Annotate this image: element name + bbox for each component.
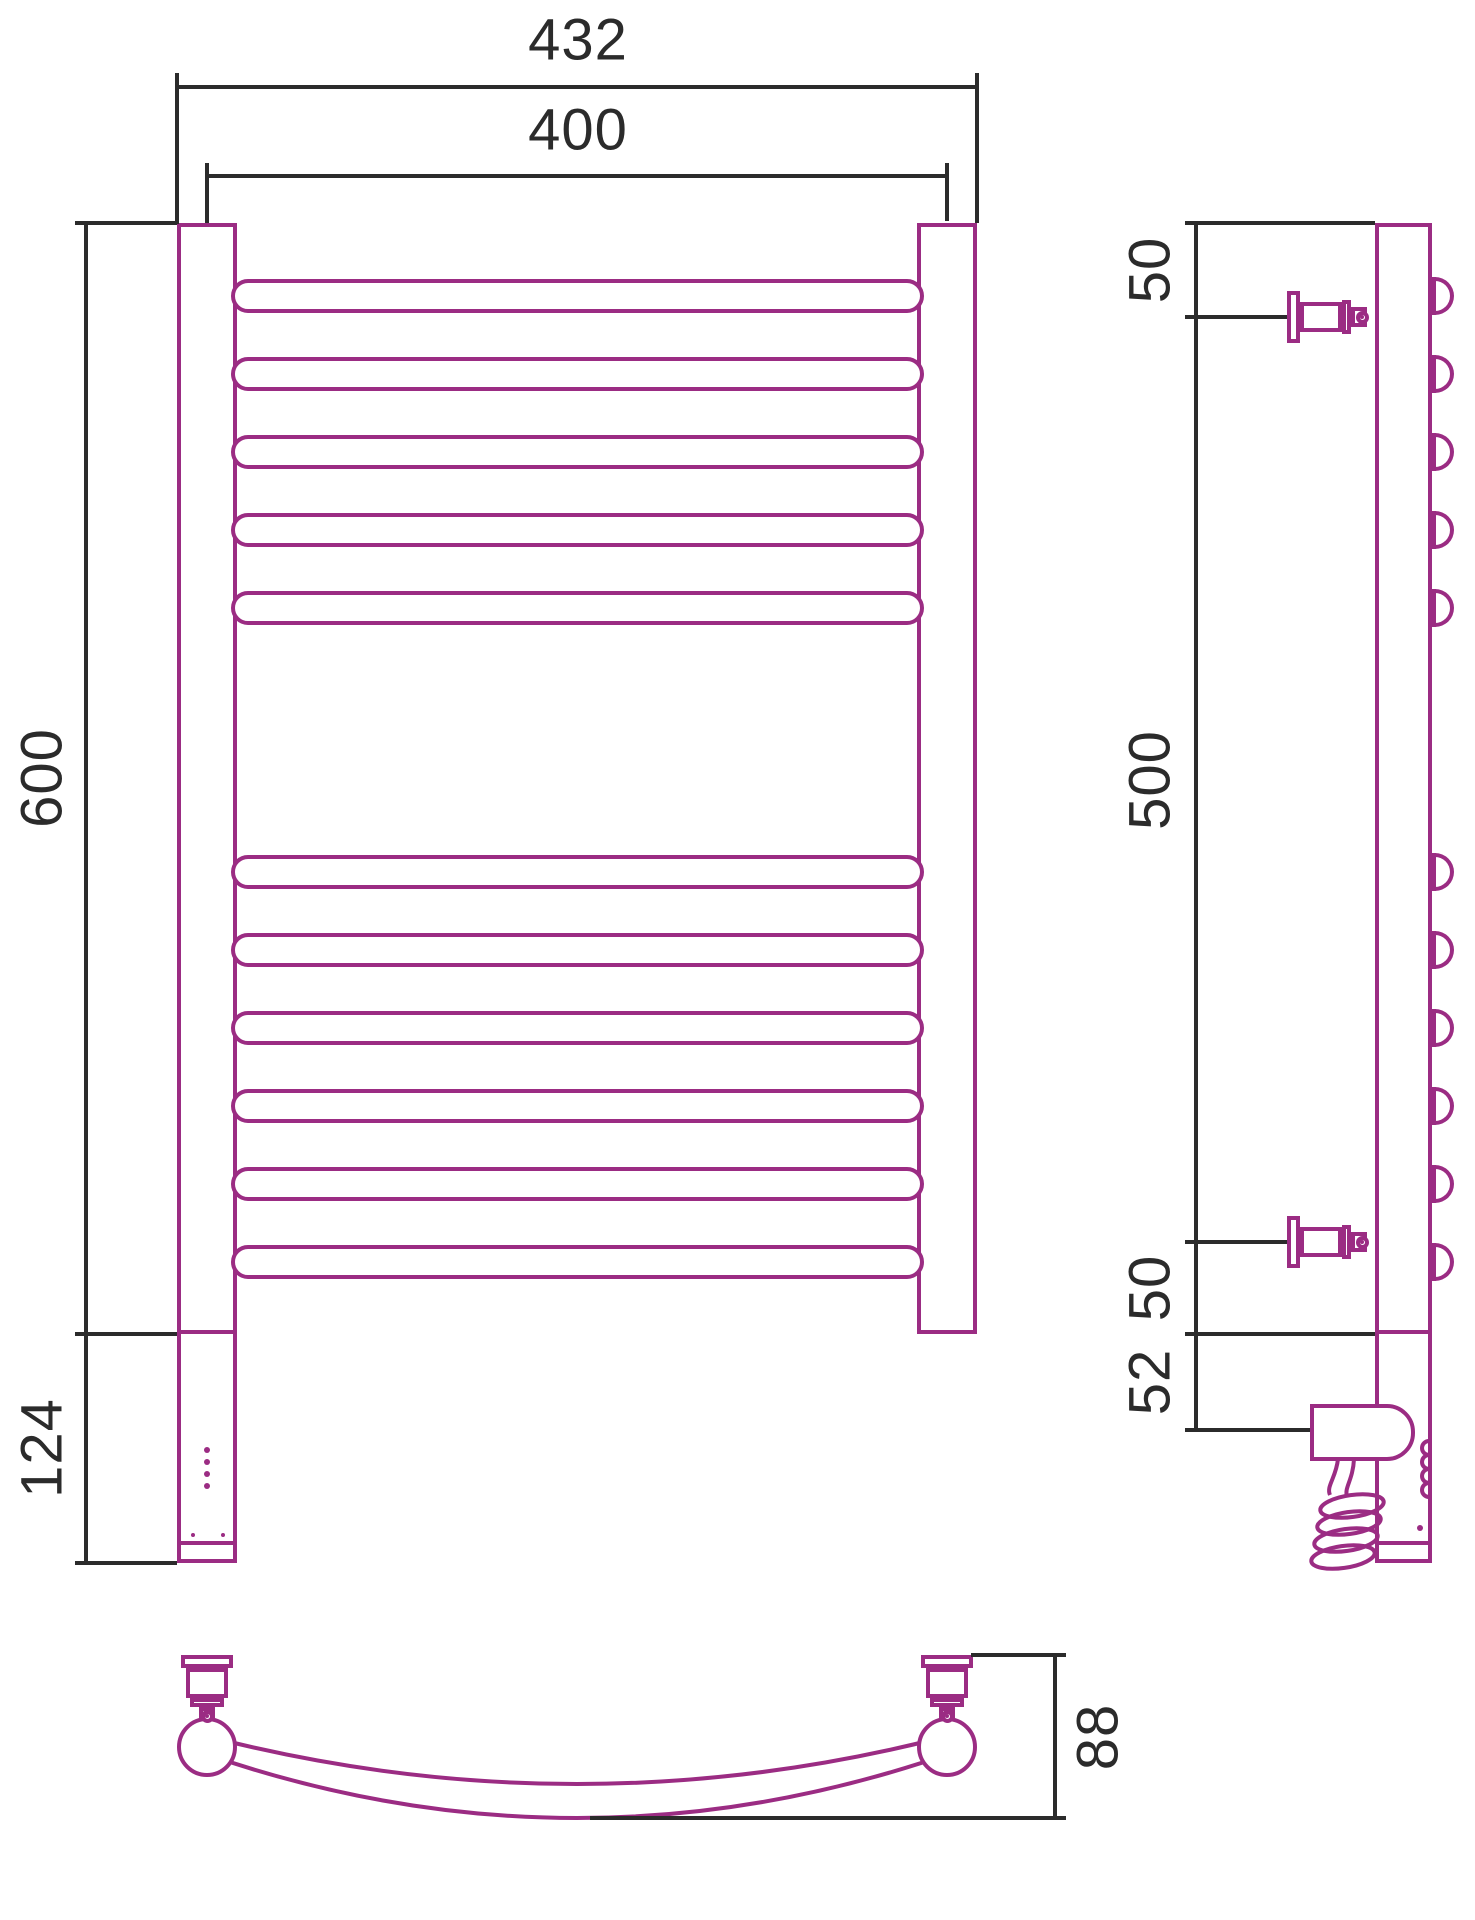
dim-label-height: 600 bbox=[9, 728, 76, 828]
power-cord-line-2 bbox=[1346, 1459, 1354, 1496]
heating-element-symbol bbox=[1422, 1441, 1429, 1497]
dim-label-width-axes: 400 bbox=[528, 97, 628, 164]
dim-label-depth: 88 bbox=[1065, 1704, 1132, 1771]
dim-label-side-bottom-offset: 50 bbox=[1117, 1255, 1184, 1322]
dim-label-side-top-offset: 50 bbox=[1117, 237, 1184, 304]
dim-label-unit-height: 124 bbox=[9, 1398, 76, 1498]
dim-label-width-outer: 432 bbox=[528, 7, 628, 74]
power-cord-line-1 bbox=[1329, 1459, 1338, 1495]
cord-and-details-layer bbox=[0, 0, 1475, 1920]
cord-coil-loop-4 bbox=[1310, 1542, 1376, 1573]
dim-label-bracket-span: 500 bbox=[1117, 730, 1184, 830]
dim-label-heater-offset: 52 bbox=[1117, 1349, 1184, 1416]
technical-drawing-canvas: 43240060012450500505288 bbox=[0, 0, 1475, 1920]
